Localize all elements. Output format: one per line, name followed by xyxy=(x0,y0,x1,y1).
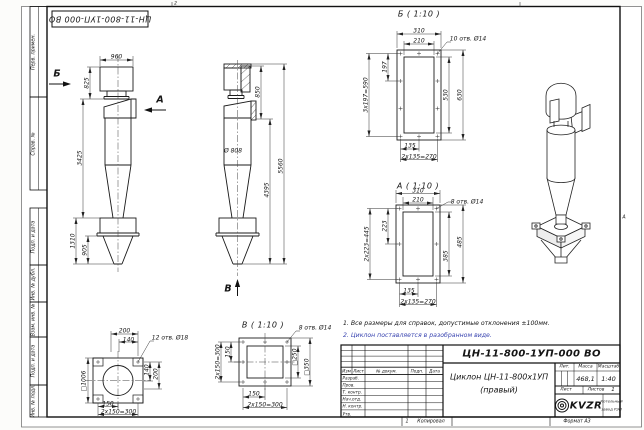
tb-row-nachotd: Нач.отд. xyxy=(343,397,362,402)
detail-a-holes-note: 8 отв. Ø14 xyxy=(451,198,484,205)
dim-b-530: 530 xyxy=(442,89,449,100)
margin-label-podp-data-1: Подп. и дата xyxy=(32,220,37,253)
margin-label-sprav-n: Справ. № xyxy=(32,132,37,155)
dim-front-960: 960 xyxy=(111,53,122,60)
dim-a-310: 310 xyxy=(412,187,423,194)
tb-row-tkontr: Т. контр. xyxy=(343,390,362,395)
dim-b-135t: 2х135=270 xyxy=(401,153,436,160)
tb-scale-value: 1:40 xyxy=(601,375,616,383)
margin-label-inv-podl: Инв. № подл. xyxy=(32,384,37,417)
dim-v-150bt: 2х150=300 xyxy=(247,401,282,408)
margin-label-vzam-inv: Взам. инв. № xyxy=(32,303,37,336)
footer-format-label: Формат А3 xyxy=(563,419,590,424)
dim-a-135t: 2х135=270 xyxy=(400,298,435,305)
dim-side-diameter: Ø 808 xyxy=(224,148,242,155)
tb-col-podp: Подп. xyxy=(411,368,424,373)
dim-a-223t: 2х223=445 xyxy=(363,226,370,261)
dim-a-385: 385 xyxy=(442,250,449,261)
tb-row-prov: Пров. xyxy=(343,383,355,388)
dim-plan-200t: 200 xyxy=(119,328,130,335)
plan-holes-note: 12 отв. Ø18 xyxy=(152,335,188,342)
dim-a-485: 485 xyxy=(456,236,463,247)
zone-mark-top: 2 xyxy=(174,1,177,6)
dim-plan-140r: 140 xyxy=(143,364,150,375)
view-letter-a: А xyxy=(156,94,163,105)
detail-v-title: В ( 1:10 ) xyxy=(242,320,284,329)
drawing-sheet: ЦН-11-800-1УП-000 ВО 2 А Перв. примен. С… xyxy=(0,0,644,430)
view-letter-b: Б xyxy=(53,69,60,80)
dim-plan-square: □1006 xyxy=(80,370,87,391)
tb-mass-value: 468,1 xyxy=(576,375,595,383)
dim-a-135: 135 xyxy=(403,288,414,295)
tb-scale-label: Масштаб xyxy=(598,365,619,370)
tb-row-utv: Утв. xyxy=(343,411,352,416)
margin-label-podp-data-2: Подп. и дата xyxy=(32,345,37,378)
dim-b-210: 210 xyxy=(413,37,424,44)
tb-col-list: Лист xyxy=(353,368,364,373)
dim-a-210: 210 xyxy=(412,197,423,204)
dim-v-350: □350 xyxy=(303,358,310,375)
tb-col-data: Дата xyxy=(429,368,440,373)
top-stamp-text: ЦН-11-800-1УП-000 ВО xyxy=(49,15,152,24)
margin-label-inv-dubl: Инв. № дубл. xyxy=(32,267,37,300)
tb-sheets-label: Листов xyxy=(588,388,605,393)
dim-v-150b: 150 xyxy=(248,391,259,398)
tb-name-line2: (правый) xyxy=(480,385,518,394)
dim-b-197: 197 xyxy=(381,61,388,72)
dim-front-1310: 1310 xyxy=(69,233,76,248)
note-1: 1. Все размеры для справок, допустимые о… xyxy=(343,320,550,327)
tb-mass-label: Масса xyxy=(578,365,592,370)
company-name-line2: завод РЭП xyxy=(601,406,622,411)
tb-lit-label: Лит. xyxy=(559,365,569,370)
detail-b-holes-note: 10 отв. Ø14 xyxy=(450,36,486,43)
dim-plan-150t: 2х150=300 xyxy=(101,408,136,415)
dim-b-630: 630 xyxy=(456,89,463,100)
company-logo-text: KVZR xyxy=(570,401,602,412)
detail-b-title: Б ( 1:10 ) xyxy=(398,10,440,19)
dim-side-5560: 5560 xyxy=(277,158,284,173)
footer-copied-label: Копировал xyxy=(417,419,444,424)
company-name-line1: Котельный xyxy=(600,399,622,404)
dim-v-150l: 150 xyxy=(224,346,231,357)
dim-b-197t: 3х197=590 xyxy=(362,77,369,112)
tb-name-line1: Циклон ЦН-11-800х1УП xyxy=(450,373,548,382)
dim-plan-140t: 140 xyxy=(123,336,134,343)
footer-zone-number: 1 xyxy=(405,419,408,424)
tb-col-izm: Изм xyxy=(342,368,351,373)
dim-front-825: 825 xyxy=(83,77,90,88)
dim-plan-150: 150 xyxy=(102,401,113,408)
margin-label-perv-primen: Перв. примен. xyxy=(32,34,37,70)
dim-side-850: 850 xyxy=(254,86,261,97)
zone-mark-right: А xyxy=(622,216,625,221)
dim-side-4395: 4395 xyxy=(263,182,270,197)
note-2: 2. Циклон поставляется в разобранном вид… xyxy=(343,332,492,339)
view-letter-v: В xyxy=(224,284,231,295)
dim-a-223: 223 xyxy=(381,220,388,231)
dim-front-3425: 3425 xyxy=(76,150,83,165)
detail-v-holes-note: 8 отв. Ø14 xyxy=(299,324,332,331)
dim-b-310: 310 xyxy=(413,27,424,34)
tb-row-razrab: Разраб. xyxy=(343,376,359,381)
dim-v-250: □250 xyxy=(291,348,298,365)
dim-front-905: 905 xyxy=(82,244,89,255)
dim-v-150lt: 2х150=300 xyxy=(214,344,221,379)
tb-row-nkontr: Н. контр. xyxy=(343,404,363,409)
tb-col-dokum: № докум. xyxy=(376,368,397,373)
dim-plan-200r: 200 xyxy=(152,368,159,379)
drawing-linework xyxy=(0,0,644,430)
tb-sheet-label: Лист xyxy=(560,388,571,393)
tb-sheets-value: 1 xyxy=(611,387,615,393)
tb-doc-number: ЦН-11-800-1УП-000 ВО xyxy=(462,349,601,360)
dim-b-135: 135 xyxy=(404,143,415,150)
